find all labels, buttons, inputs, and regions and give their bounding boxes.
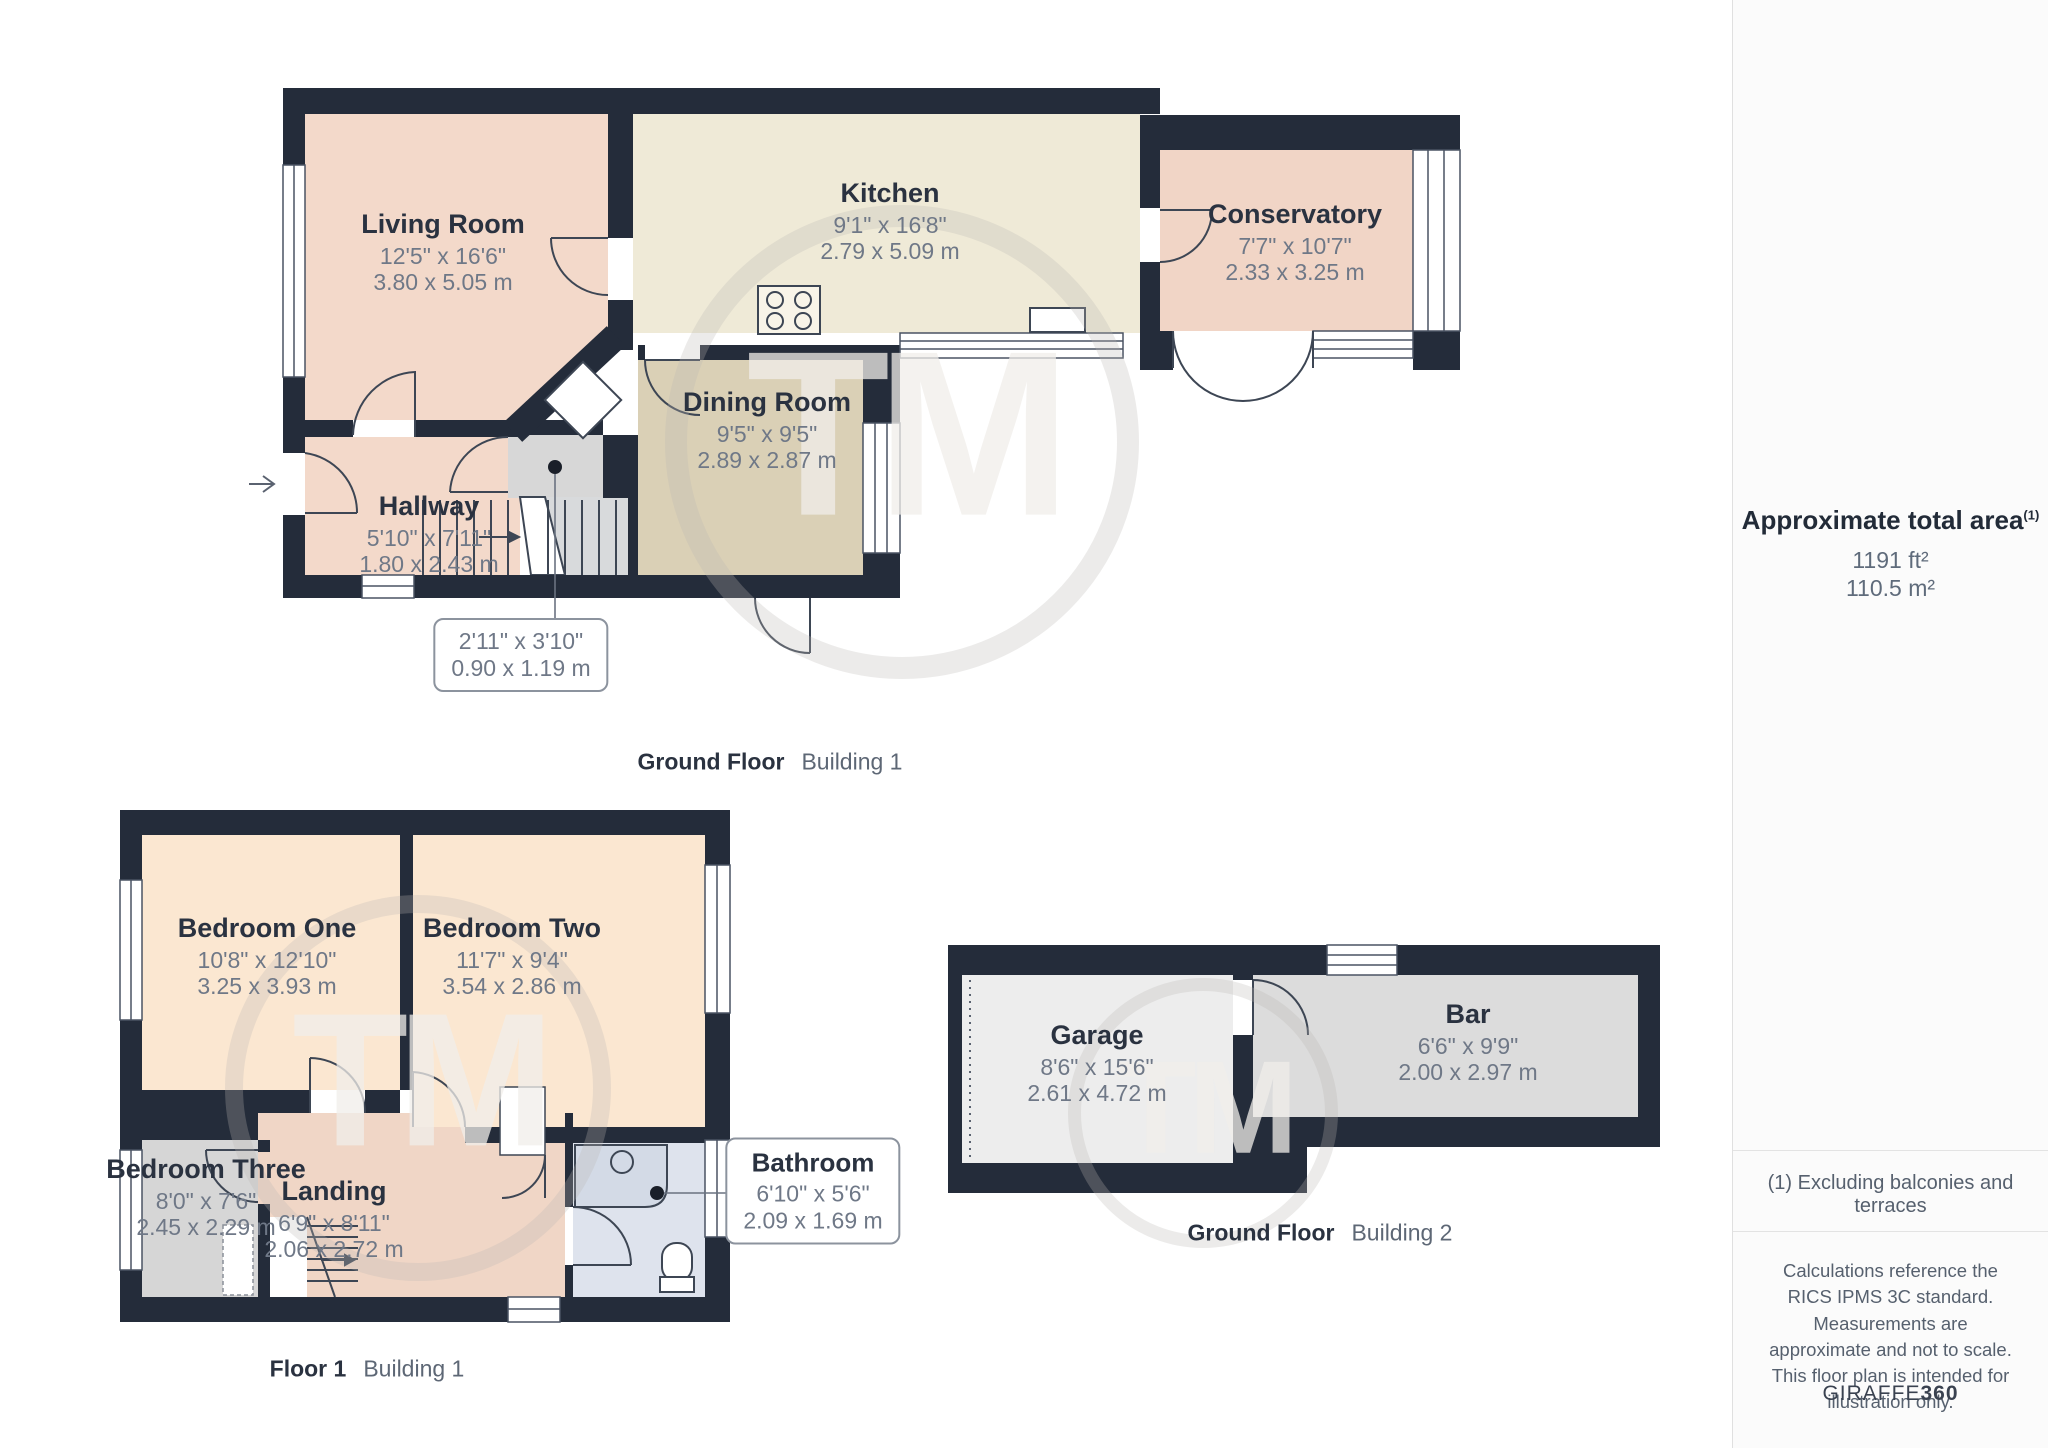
total-area-title: Approximate total area(1) bbox=[1733, 505, 2048, 536]
floorplan-page: TM TM TM Living Room 12'5" x 16'6" 3.80 … bbox=[0, 0, 2048, 1448]
toilet-icon bbox=[660, 1243, 694, 1292]
room-label-bedroom-one: Bedroom One 10'8" x 12'10" 3.25 x 3.93 m bbox=[178, 913, 357, 999]
caption-ground-floor-building1: Ground Floor Building 1 bbox=[638, 749, 903, 776]
total-area-imperial: 1191 ft² 110.5 m² bbox=[1733, 546, 2048, 602]
plan-floor1-building1 bbox=[95, 805, 925, 1405]
caption-ground-floor-building2: Ground Floor Building 2 bbox=[1188, 1220, 1453, 1247]
cupboard-dimension-callout: 2'11" x 3'10" 0.90 x 1.19 m bbox=[433, 618, 608, 692]
callout-anchor-dot bbox=[650, 1186, 664, 1200]
room-label-garage: Garage 8'6" x 15'6" 2.61 x 4.72 m bbox=[1027, 1020, 1166, 1106]
closet bbox=[500, 1087, 545, 1155]
room-label-hallway: Hallway 5'10" x 7'11" 1.80 x 2.43 m bbox=[359, 491, 498, 577]
french-doors bbox=[1173, 331, 1313, 401]
caption-floor1-building1: Floor 1 Building 1 bbox=[270, 1356, 465, 1383]
footnote-marker: (1) bbox=[2023, 507, 2039, 522]
room-label-living-room: Living Room 12'5" x 16'6" 3.80 x 5.05 m bbox=[361, 209, 525, 295]
footnote-text: (1) Excluding balconies and terraces bbox=[1733, 1172, 2048, 1218]
total-area-block: Approximate total area(1) 1191 ft² 110.5… bbox=[1733, 505, 2048, 602]
room-label-bar: Bar 6'6" x 9'9" 2.00 x 2.97 m bbox=[1398, 999, 1537, 1085]
lobby-floor bbox=[1253, 975, 1307, 1117]
room-label-landing: Landing 6'9" x 8'11" 2.06 x 2.72 m bbox=[264, 1176, 403, 1262]
callout-anchor-dot bbox=[548, 460, 562, 474]
sidebar-divider bbox=[1733, 1231, 2048, 1232]
total-area-metric: 110.5 m² bbox=[1846, 575, 1935, 601]
plan-c-windows bbox=[1327, 945, 1397, 975]
sink-icon bbox=[1030, 308, 1085, 332]
entry-arrow-icon bbox=[249, 476, 274, 492]
room-label-bedroom-two: Bedroom Two 11'7" x 9'4" 3.54 x 2.86 m bbox=[423, 913, 601, 999]
bathroom-callout: Bathroom 6'10" x 5'6" 2.09 x 1.69 m bbox=[725, 1138, 900, 1245]
hob-icon bbox=[758, 286, 820, 334]
sidebar-divider bbox=[1733, 1150, 2048, 1151]
room-label-kitchen: Kitchen 9'1" x 16'8" 2.79 x 5.09 m bbox=[820, 178, 959, 264]
room-label-dining-room: Dining Room 9'5" x 9'5" 2.89 x 2.87 m bbox=[683, 387, 851, 473]
giraffe360-logo: GIRAFFE360 bbox=[1733, 1382, 2048, 1406]
summary-sidebar: Approximate total area(1) 1191 ft² 110.5… bbox=[1732, 0, 2048, 1448]
back-door bbox=[755, 598, 810, 653]
room-label-conservatory: Conservatory 7'7" x 10'7" 2.33 x 3.25 m bbox=[1208, 199, 1382, 285]
